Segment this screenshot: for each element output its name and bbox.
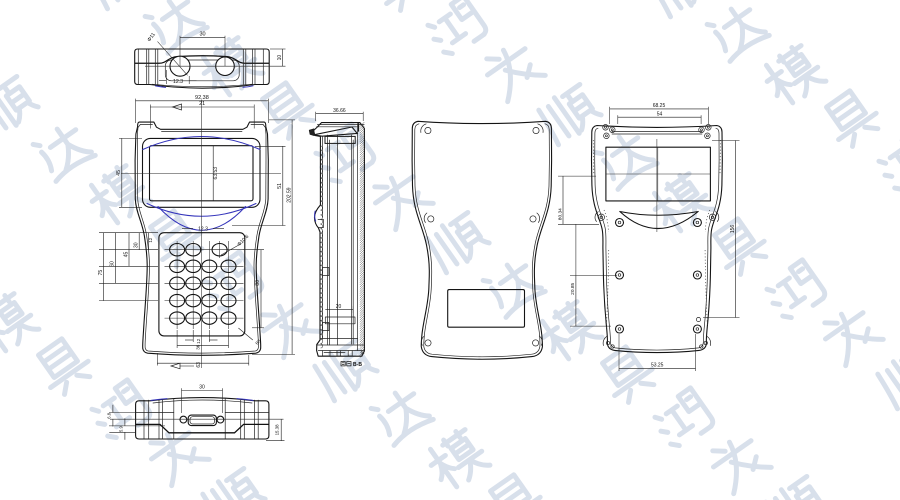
- svg-text:60: 60: [110, 261, 116, 267]
- svg-text:12.3: 12.3: [173, 79, 183, 85]
- svg-text:68.25: 68.25: [653, 103, 666, 109]
- svg-text:92.38: 92.38: [195, 95, 209, 101]
- svg-text:10: 10: [277, 55, 283, 61]
- svg-text:45: 45: [123, 252, 129, 258]
- svg-text:15.38: 15.38: [275, 424, 280, 436]
- svg-text:63.53: 63.53: [213, 167, 219, 180]
- svg-text:80.34: 80.34: [557, 208, 563, 220]
- svg-text:202.59: 202.59: [286, 187, 292, 203]
- svg-text:36.66: 36.66: [333, 108, 346, 114]
- svg-text:30: 30: [199, 385, 205, 391]
- svg-text:54: 54: [657, 111, 663, 117]
- svg-text:20.85: 20.85: [570, 282, 576, 294]
- svg-text:80: 80: [255, 280, 261, 286]
- svg-text:6.8: 6.8: [106, 412, 111, 418]
- svg-text:20: 20: [336, 304, 342, 310]
- svg-text:51: 51: [277, 183, 283, 189]
- svg-text:75: 75: [98, 270, 104, 276]
- svg-text:45: 45: [116, 170, 122, 176]
- svg-text:36: 36: [195, 344, 200, 350]
- svg-text:30: 30: [134, 242, 140, 248]
- svg-text:12: 12: [196, 338, 201, 344]
- svg-text:21: 21: [199, 101, 205, 107]
- svg-text:156: 156: [730, 225, 736, 234]
- svg-text:B-B: B-B: [353, 362, 362, 368]
- svg-text:12.3: 12.3: [198, 227, 208, 233]
- svg-text:5.9: 5.9: [118, 426, 123, 432]
- svg-text:53.25: 53.25: [651, 363, 664, 369]
- svg-text:63: 63: [196, 362, 202, 368]
- svg-text:30: 30: [199, 32, 205, 38]
- svg-text:12: 12: [148, 237, 153, 242]
